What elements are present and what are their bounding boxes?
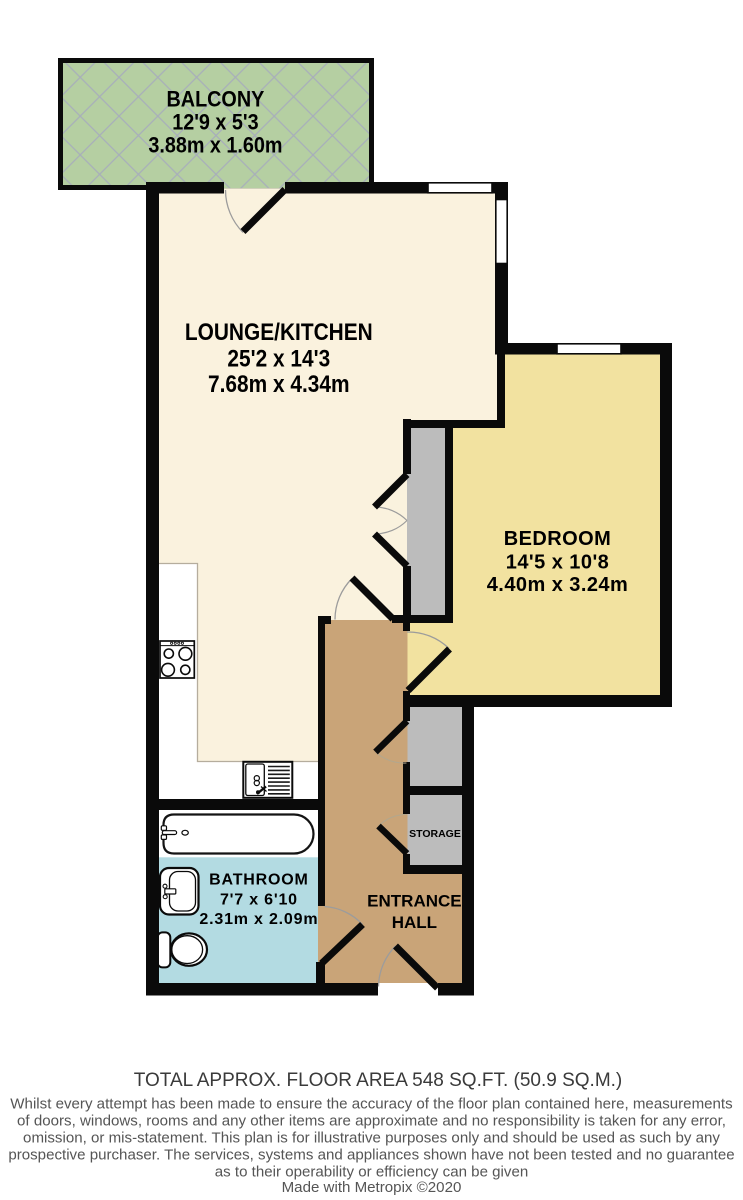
svg-text:Made with Metropix ©2020: Made with Metropix ©2020 [282,1179,462,1196]
svg-text:as to their operability or eff: as to their operability or efficiency ca… [215,1164,529,1181]
svg-text:STORAGE: STORAGE [409,828,461,840]
svg-text:prospective purchaser. The ser: prospective purchaser. The services, sys… [8,1147,734,1164]
svg-text:BATHROOM: BATHROOM [209,872,308,889]
svg-text:3.88m x 1.60m: 3.88m x 1.60m [148,134,282,158]
svg-text:Whilst every attempt has been: Whilst every attempt has been made to en… [10,1096,732,1113]
svg-text:25'2 x 14'3: 25'2 x 14'3 [227,345,330,372]
svg-text:7.68m x 4.34m: 7.68m x 4.34m [208,370,350,397]
svg-text:2.31m x 2.09m: 2.31m x 2.09m [199,911,318,928]
svg-text:BEDROOM: BEDROOM [504,528,612,550]
svg-text:14'5 x 10'8: 14'5 x 10'8 [506,551,609,573]
svg-text:of doors, windows, rooms and a: of doors, windows, rooms and any other i… [17,1113,726,1130]
svg-text:TOTAL APPROX. FLOOR AREA 548 S: TOTAL APPROX. FLOOR AREA 548 SQ.FT. (50.… [134,1070,623,1091]
svg-text:12'9 x 5'3: 12'9 x 5'3 [172,111,258,135]
svg-text:BALCONY: BALCONY [167,88,265,112]
svg-text:LOUNGE/KITCHEN: LOUNGE/KITCHEN [185,319,373,346]
svg-text:omission, or mis-statement. Th: omission, or mis-statement. This plan is… [23,1130,720,1147]
svg-text:HALL: HALL [392,913,437,932]
svg-text:7'7 x 6'10: 7'7 x 6'10 [220,892,298,909]
svg-text:ENTRANCE: ENTRANCE [367,892,461,911]
svg-text:4.40m x 3.24m: 4.40m x 3.24m [487,574,629,596]
